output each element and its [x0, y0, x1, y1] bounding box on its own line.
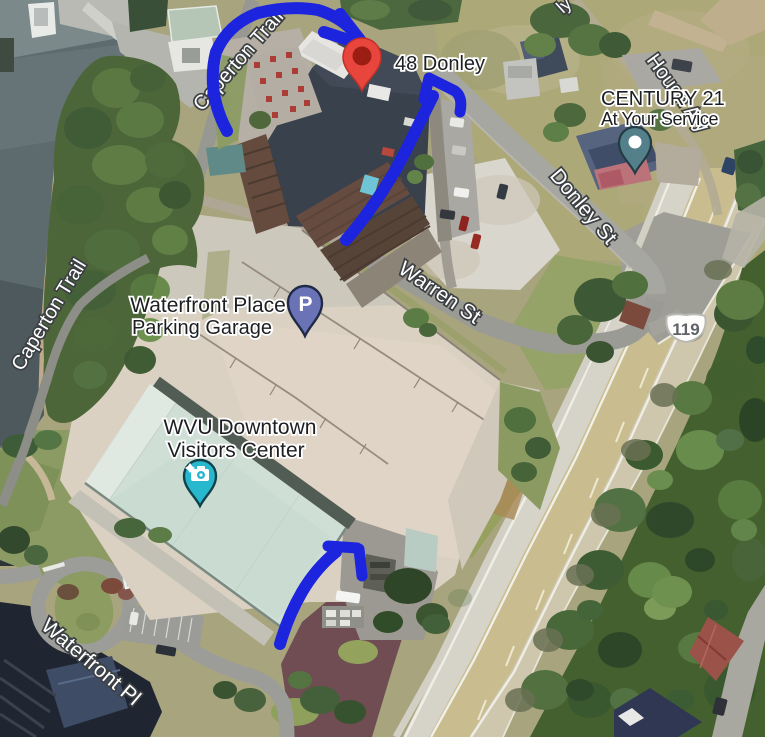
svg-text:48 Donley: 48 Donley	[395, 53, 485, 75]
svg-text:CENTURY 21: CENTURY 21	[601, 88, 725, 110]
svg-text:At Your Service: At Your Service	[601, 109, 718, 129]
svg-text:WVU Downtown: WVU Downtown	[164, 416, 317, 439]
svg-text:Parking Garage: Parking Garage	[132, 317, 272, 339]
svg-text:119: 119	[672, 320, 699, 339]
svg-text:Visitors Center: Visitors Center	[167, 439, 304, 462]
svg-text:Waterfront Place: Waterfront Place	[130, 294, 286, 317]
svg-text:P: P	[298, 293, 312, 316]
